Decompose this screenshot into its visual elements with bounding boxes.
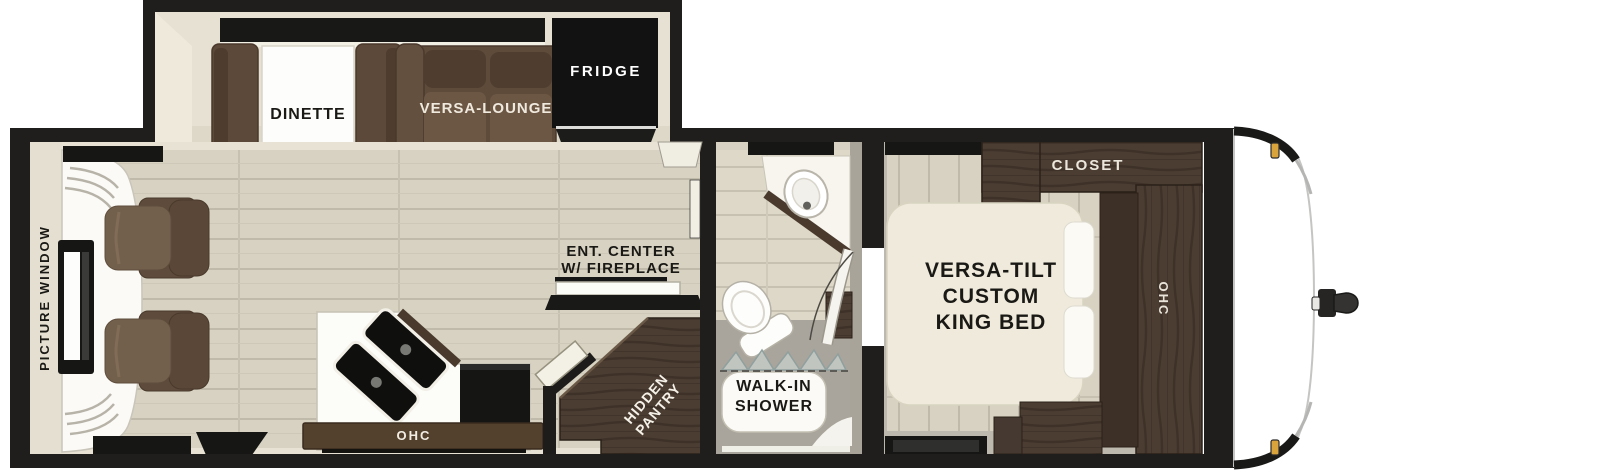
wall-bath-bedroom-upper [862, 142, 884, 248]
living-area [30, 142, 716, 456]
front-cap [1234, 130, 1358, 466]
kitchen-ohc-cabinet [303, 423, 543, 449]
fridge [552, 18, 658, 150]
wall-slideout-top [143, 0, 682, 12]
wall-bath-bedroom-lower [862, 346, 884, 454]
living-top-window [63, 146, 163, 162]
kitchen-ohc-shadow [322, 449, 526, 453]
ent-niche-face [690, 180, 700, 238]
wall-slideout-right [670, 0, 682, 142]
floorplan-image: PICTURE WINDOW DINETTE VERSA-LOUNGE FRID… [0, 0, 1600, 476]
recliner-2 [105, 311, 209, 391]
recliner-1 [105, 198, 209, 278]
headboard-panel [1100, 193, 1138, 447]
pillow-1 [1064, 222, 1094, 298]
door-wall-stub [543, 386, 556, 454]
bedroom [884, 142, 1202, 456]
pillow-2 [1064, 306, 1094, 378]
hitch-coupler [1312, 289, 1358, 317]
ent-center [545, 277, 704, 310]
versa-lounge-sofa [396, 44, 556, 154]
wall-rear [10, 128, 30, 468]
floorplan-drawing [0, 0, 1600, 476]
wall-slideout-left [143, 0, 155, 142]
bedroom-ohc-cabinet [1136, 185, 1202, 454]
bedroom-bottom-window [885, 436, 987, 456]
wall-bedroom-front [1204, 128, 1234, 468]
slideout-end-trim [658, 142, 702, 167]
wall-top-right [670, 128, 1234, 142]
rear-cap [58, 150, 142, 452]
clearance-light-bottom [1271, 440, 1279, 455]
wall-bottom [10, 454, 1234, 468]
picture-window [58, 240, 94, 374]
bath-window [748, 142, 834, 155]
slideout-window [220, 18, 545, 42]
clearance-light-top [1271, 143, 1279, 158]
bedroom-top-window [885, 142, 995, 155]
range-edge [460, 364, 530, 370]
rear-wall-band [30, 142, 62, 454]
wall-living-bath [700, 142, 716, 454]
king-bed [887, 203, 1094, 405]
living-bottom-window [93, 436, 191, 456]
